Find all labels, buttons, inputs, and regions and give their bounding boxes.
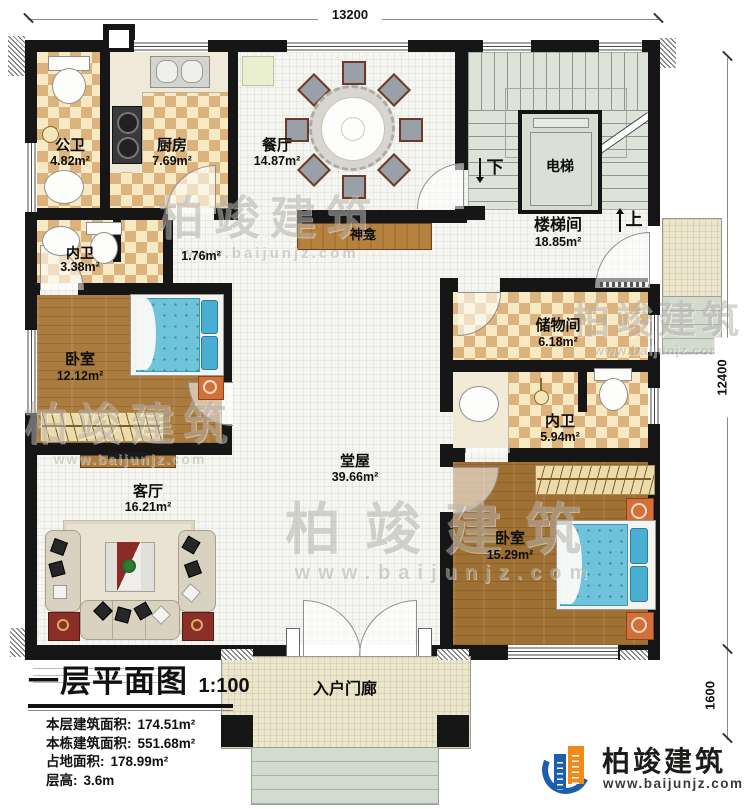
sofa-pillow: [53, 585, 67, 599]
end-table-right-ornament: [191, 619, 203, 631]
room-area-bath1: 3.38m²: [50, 261, 110, 274]
stove-burner-1: [117, 112, 139, 134]
bedroom1-wardrobe-rail: [42, 425, 160, 427]
room-label-porch: 入户门廊: [295, 682, 395, 698]
window-bath2: [648, 388, 660, 424]
porch-column-right: [437, 715, 469, 747]
room-area-bedroom1: 12.12m²: [42, 370, 118, 383]
side-landing: [662, 218, 722, 298]
wall-bath2-bedroom2-a: [440, 448, 465, 462]
bedroom1-wardrobe: [40, 412, 164, 442]
window-bedroom2: [508, 645, 618, 660]
room-area-shrine: 1.76m²: [170, 250, 232, 263]
room-label-bedroom1: 卧室: [50, 352, 110, 368]
pilaster-hatch: [437, 649, 469, 660]
logo-building-icon: [568, 746, 584, 784]
chimney: [103, 24, 135, 54]
title-block: 一层平面图 1:100 本层建筑面积:174.51m² 本栋建筑面积:551.6…: [28, 656, 243, 790]
plan-title: 一层平面图: [28, 664, 188, 699]
sink-3: [459, 386, 499, 422]
room-label-bath2: 内卫: [530, 414, 590, 430]
side-steps: [662, 296, 722, 354]
stair-down-label: 下: [485, 160, 505, 176]
wall-bath-kitchen: [100, 52, 110, 210]
room-label-elevator: 电梯: [530, 158, 590, 174]
elevator-door-slit: [533, 118, 589, 128]
pilaster-hatch: [620, 650, 648, 660]
dining-niche: [242, 56, 274, 86]
wall-kitchen-bottom-a: [25, 208, 168, 220]
dim-tick: [23, 13, 34, 24]
kitchen-sink-basin-1: [156, 60, 178, 83]
plant-icon: [122, 559, 136, 573]
window-kitchen: [134, 40, 208, 52]
kitchen-sink-basin-2: [181, 60, 203, 83]
stove-burner-2: [117, 137, 139, 159]
toilet-bowl-3: [599, 378, 628, 411]
stat-row: 占地面积:178.99m²: [46, 753, 243, 772]
wall-kitchen-dining: [228, 52, 238, 220]
sink-1: [44, 170, 84, 204]
logo-building-icon: [554, 754, 566, 790]
toilet-bowl-1: [52, 68, 86, 104]
wall-dining-stair: [455, 52, 468, 170]
window-dining: [287, 40, 408, 52]
stat-row: 本栋建筑面积:551.68m²: [46, 735, 243, 754]
room-area-bedroom2: 15.29m²: [472, 549, 548, 562]
bed1-pillow: [201, 336, 218, 370]
plan-scale: 1:100: [198, 675, 249, 697]
dining-chair: [342, 61, 366, 85]
brand-name: 柏竣建筑: [602, 740, 750, 780]
pilaster-hatch: [8, 36, 25, 76]
room-label-bath1: 内卫: [50, 245, 110, 261]
bedroom1-nightstand-top: [203, 380, 217, 394]
pilaster-hatch: [10, 628, 25, 657]
room-area-kitchen: 7.69m²: [142, 155, 202, 168]
floor-plan-canvas: 柏竣建筑 www.baijunjz.com 柏竣建筑 www.baijunjz.…: [0, 0, 750, 809]
stair-down-arrowhead: [476, 177, 484, 183]
dining-chair: [342, 175, 366, 199]
dim-width: 13200: [318, 7, 382, 22]
stat-row: 层高:3.6m: [46, 772, 243, 791]
room-area-storage: 6.18m²: [522, 336, 594, 349]
bed1-pillow: [201, 300, 218, 334]
wall-right-core-a: [440, 278, 453, 412]
pilaster-hatch: [660, 38, 676, 68]
stair-up-arrow: [619, 214, 621, 232]
room-area-bath2: 5.94m²: [525, 431, 595, 444]
end-table-left-ornament: [57, 619, 69, 631]
wall-bath2-bedroom2-b: [508, 448, 660, 462]
bedroom2-nightstand-2-top: [631, 617, 647, 633]
shower-pull-icon: [534, 390, 549, 405]
window-bath-public: [25, 143, 37, 212]
dining-chair: [399, 118, 423, 142]
logo-swoosh-icon: [535, 739, 597, 801]
dim-porch-depth: 1600: [703, 666, 718, 726]
entry-steps: [251, 747, 439, 805]
dim-tick: [653, 13, 664, 24]
brand-logo[interactable]: 柏竣建筑 www.baijunjz.com: [540, 740, 750, 804]
window-stair1: [483, 40, 531, 52]
room-label-stairwell: 楼梯间: [518, 218, 598, 234]
stair-up-label: 上: [624, 212, 644, 228]
bedroom2-wardrobe-rail: [537, 478, 651, 480]
room-label-living: 客厅: [118, 484, 178, 500]
bedroom2-nightstand-1-top: [631, 503, 647, 519]
wall-bedroom2-left-b: [440, 512, 453, 645]
side-exit-door-leaf: [600, 282, 648, 287]
bed2-pillow: [630, 566, 648, 602]
room-label-kitchen: 厨房: [142, 138, 202, 154]
entry-porch-floor: [221, 656, 471, 749]
wall-shrine: [297, 210, 467, 223]
dining-table-center: [341, 117, 365, 141]
room-label-bath-public: 公卫: [40, 138, 100, 154]
stair-down-arrow: [479, 158, 481, 178]
shower-pull-cord: [540, 378, 542, 390]
room-area-dining: 14.87m²: [237, 155, 317, 168]
room-area-stairwell: 18.85m²: [520, 236, 596, 249]
wall-bedroom1-right-b: [222, 424, 232, 443]
stat-row: 本层建筑面积:174.51m²: [46, 716, 243, 735]
stair-up-arrowhead: [616, 208, 624, 214]
room-label-storage: 储物间: [518, 318, 598, 334]
room-area-living: 16.21m²: [108, 501, 188, 514]
window-bedroom1: [25, 330, 37, 413]
room-label-bedroom2: 卧室: [480, 531, 540, 547]
title-rule-thick: [28, 704, 233, 708]
room-label-shrine: 神龛: [333, 228, 393, 242]
window-storage: [648, 315, 660, 352]
window-stair2: [599, 40, 642, 52]
room-area-hall: 39.66m²: [315, 471, 395, 484]
bedroom2-wardrobe: [535, 465, 655, 495]
wall-bedroom2-left-a: [440, 462, 453, 467]
wall-bath2-stub: [578, 372, 587, 412]
wall-bath1-bottom-a: [25, 283, 40, 295]
tv-icon: [108, 452, 146, 459]
dim-height: 12400: [715, 338, 730, 418]
brand-url: www.baijunjz.com: [603, 776, 750, 791]
room-label-dining: 餐厅: [247, 138, 307, 154]
room-area-bath-public: 4.82m²: [40, 155, 100, 168]
room-label-hall: 堂屋: [325, 454, 385, 470]
title-rule-thin: [28, 710, 233, 711]
bed2-pillow: [630, 528, 648, 564]
